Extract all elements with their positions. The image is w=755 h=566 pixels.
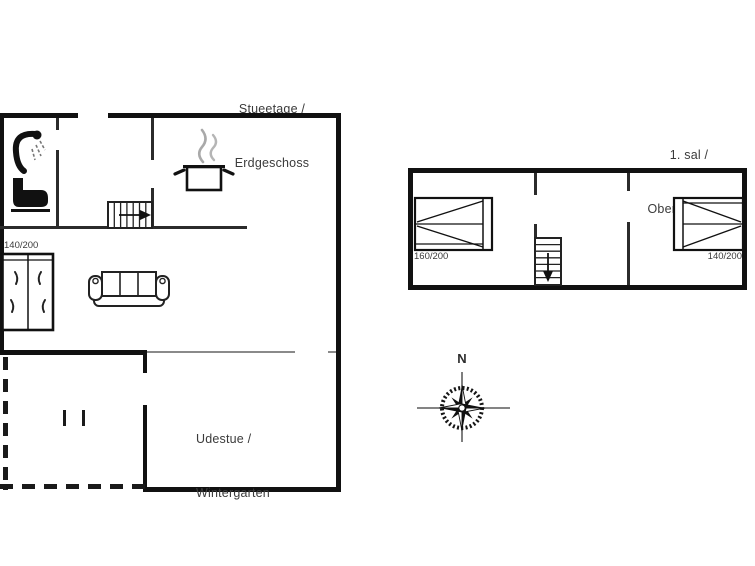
bed-right-icon xyxy=(673,197,744,251)
uf-bed-left-size-label: 160/200 xyxy=(414,252,448,262)
wintergarten-label-line1: Udestue / xyxy=(196,430,270,448)
uf-interior-wall-right-upper xyxy=(627,173,630,191)
bathroom-wall-right xyxy=(56,150,59,228)
double-bed-icon xyxy=(1,250,55,332)
gf-wall-right xyxy=(336,113,341,492)
terrace-dashed-outline xyxy=(0,350,150,495)
toilet-icon xyxy=(8,176,52,216)
compass-rose-icon xyxy=(412,368,514,446)
wintergarten-label-line2: Wintergarten xyxy=(196,484,270,502)
terrace-door-mark-right xyxy=(82,410,85,426)
floor-plan-canvas: Stueetage / Erdgeschoss xyxy=(0,0,755,566)
gf-wall-top-right xyxy=(108,113,341,118)
uf-bed-right-size-label: 140/200 xyxy=(694,252,742,262)
uf-wall-left xyxy=(408,168,413,290)
wintergarten-label: Udestue / Wintergarten xyxy=(196,394,270,538)
uf-wall-bottom xyxy=(408,285,747,290)
sofa-icon xyxy=(86,266,172,310)
upper-floor-title-line1: 1. sal / xyxy=(614,146,755,164)
uf-interior-wall-right-lower xyxy=(627,222,630,285)
cooking-pot-icon xyxy=(172,126,236,194)
bed-left-icon xyxy=(414,197,493,251)
stairs-down-icon xyxy=(534,237,562,286)
hall-wall-upper xyxy=(151,118,154,160)
compass-north-label: N xyxy=(450,351,474,366)
bathroom-wall-stub xyxy=(56,118,59,130)
gf-conservatory-window-line-end xyxy=(328,351,336,353)
gf-wall-top-left xyxy=(0,113,78,118)
uf-wall-top xyxy=(408,168,747,173)
stairs-up-icon xyxy=(107,201,153,229)
shower-icon xyxy=(8,126,50,178)
gf-conservatory-window-line xyxy=(147,351,295,353)
terrace-door-mark-left xyxy=(63,410,66,426)
uf-interior-wall-left-upper xyxy=(534,173,537,195)
